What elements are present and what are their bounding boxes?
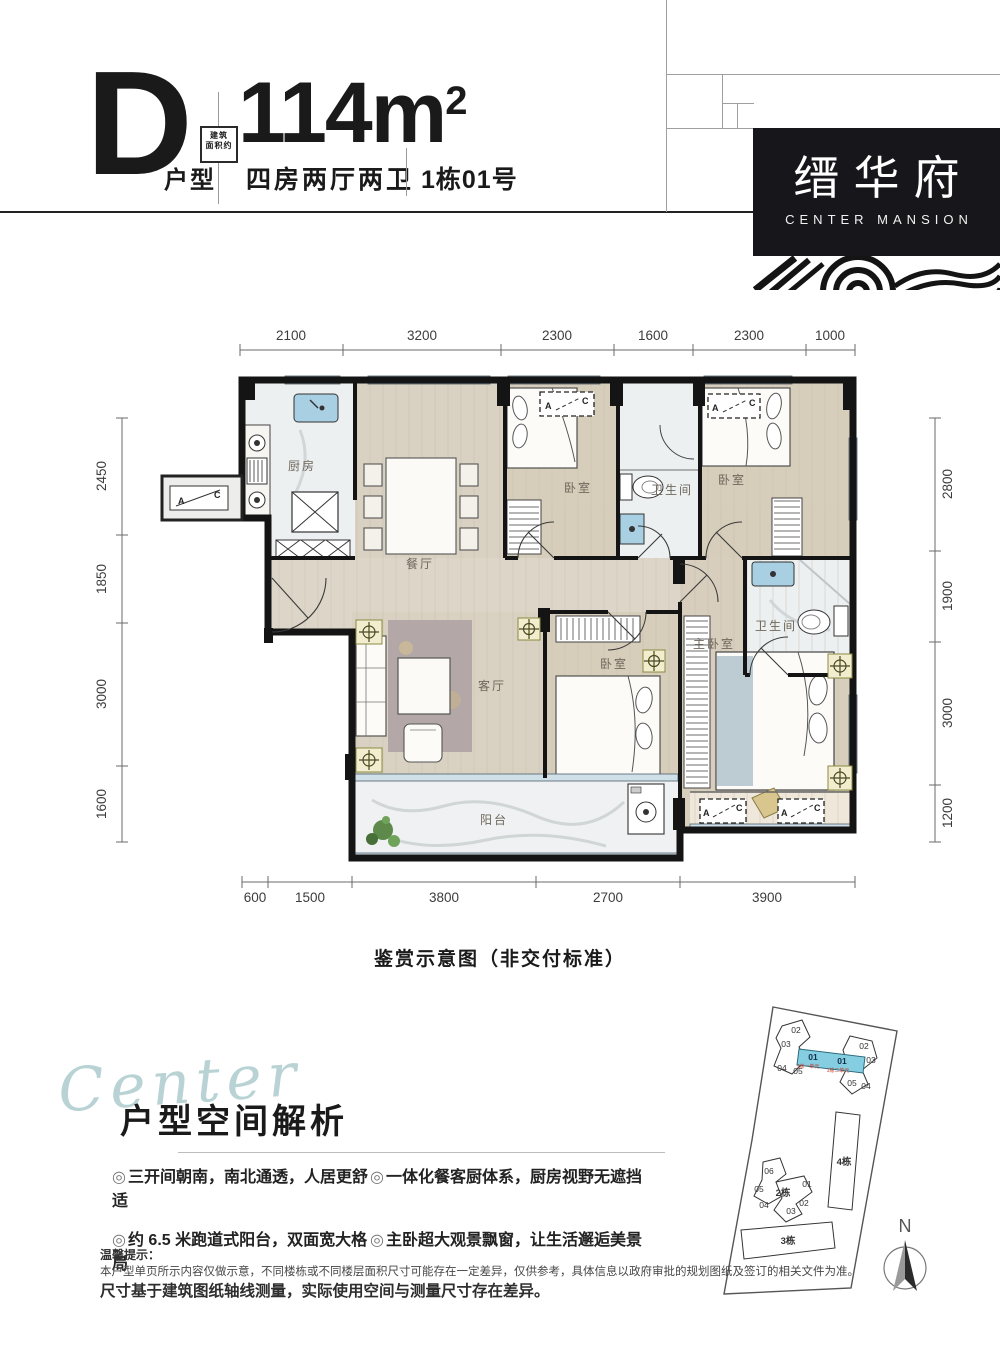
ac-letter-a: A — [712, 403, 719, 413]
disclaimer-line1: 本户型单页所示内容仅做示意，不同楼栋或不同楼层面积尺寸可能存在一定差异，仅供参考… — [100, 1263, 980, 1279]
bullet-marker: ◎ — [370, 1232, 384, 1249]
brand-name-en: CENTER MANSION — [753, 212, 1000, 227]
rooms-summary: 四房两厅两卫 — [246, 160, 414, 196]
dim-bottom: 1500 — [295, 890, 325, 905]
bullet-text: 主卧超大观景飘窗，让生活邂逅美景 — [386, 1232, 642, 1249]
ornament-line — [737, 103, 738, 129]
ac-letter-a: A — [703, 808, 710, 818]
bullet-text: 一体化餐客厨体系，厨房视野无遮挡 — [386, 1169, 642, 1186]
header-divider-2 — [406, 148, 407, 196]
analysis-bullets: ◎三开间朝南，南北通透，人居更舒适 ◎约 6.5 米跑道式阳台，双面宽大格局 ◎… — [112, 1163, 732, 1274]
ac-letter-c: C — [582, 396, 589, 406]
dim-bottom: 3900 — [752, 890, 782, 905]
disclaimer-title: 温馨提示： — [100, 1246, 160, 1263]
unit-label: 02 — [791, 1025, 801, 1035]
unit-red-label: 1栋一单元 — [797, 1063, 820, 1070]
floor-plan: A C A C A C A C — [85, 312, 975, 960]
flyer-page: D 户型 建筑 面积约 114m2 四房两厅两卫 1栋01号 缙华府 CENTE… — [0, 0, 1000, 1356]
dim-right: 2800 — [940, 469, 955, 499]
north-label: N — [899, 1216, 912, 1236]
bullet-marker: ◎ — [112, 1169, 126, 1186]
unit-label: 04 — [759, 1200, 769, 1210]
unit-red-label: 1栋二单元 — [827, 1067, 850, 1074]
dim-bottom: 600 — [244, 890, 267, 905]
label-balcony: 阳台 — [480, 812, 508, 827]
label-kitchen: 厨房 — [288, 458, 316, 473]
dim-left: 3000 — [94, 679, 109, 709]
area-tag-line2: 面积约 — [202, 141, 236, 151]
dim-right: 1900 — [940, 581, 955, 611]
dim-top: 2300 — [734, 328, 764, 343]
building3-label: 3栋 — [781, 1235, 796, 1247]
disclaimer-line2: 尺寸基于建筑图纸轴线测量，实际使用空间与测量尺寸存在差异。 — [100, 1279, 980, 1301]
ac-letter-c: C — [736, 803, 743, 813]
area-tag-line1: 建筑 — [202, 131, 236, 141]
ornament-line — [666, 74, 1000, 75]
bullet-text: 三开间朝南，南北通透，人居更舒适 — [112, 1169, 368, 1210]
label-living: 客厅 — [478, 678, 506, 693]
analysis-title: 户型空间解析 — [120, 1094, 348, 1143]
analysis-rule — [178, 1152, 665, 1153]
dim-top: 1000 — [815, 328, 845, 343]
ac-letter-c: C — [749, 398, 756, 408]
dim-right: 1200 — [940, 798, 955, 828]
dim-left: 1600 — [94, 789, 109, 819]
unit-label: 02 — [799, 1198, 809, 1208]
brand-name-cn: 缙华府 — [753, 142, 1000, 208]
ac-letter-c: C — [814, 803, 821, 813]
dim-left: 1850 — [94, 564, 109, 594]
unit-label: 04 — [861, 1081, 871, 1091]
brand-logo-box: 缙华府 CENTER MANSION — [753, 128, 1000, 256]
building2-label: 2栋 — [776, 1187, 791, 1199]
label-dining: 餐厅 — [406, 556, 434, 571]
area-sup: 2 — [445, 79, 467, 123]
ac-letter-a: A — [781, 808, 788, 818]
dim-top: 2300 — [542, 328, 572, 343]
header-rule — [0, 211, 753, 213]
zebra-pattern — [753, 256, 1000, 290]
label-bath: 卫生间 — [651, 483, 693, 497]
site-plan: 02 03 04 05 02 03 05 04 01 01 1栋一单元 1栋二单… — [715, 992, 1000, 1304]
dim-bottom: 2700 — [593, 890, 623, 905]
dim-left: 2450 — [94, 461, 109, 491]
ornament-line — [722, 103, 754, 104]
label-bedroom: 卧室 — [718, 472, 746, 487]
ac-letter-a: A — [178, 496, 185, 506]
area-value: 114m2 — [238, 70, 467, 156]
dim-right: 3000 — [940, 698, 955, 728]
unit-label: 02 — [859, 1041, 869, 1051]
unit-label: 06 — [764, 1166, 774, 1176]
dim-bottom: 3800 — [429, 890, 459, 905]
plan-caption: 鉴赏示意图（非交付标准） — [0, 944, 1000, 971]
highlight-unit-label: 01 — [808, 1052, 818, 1062]
label-bedroom: 卧室 — [564, 480, 592, 495]
bullet-item: ◎三开间朝南，南北通透，人居更舒适 — [112, 1163, 370, 1211]
dim-top: 3200 — [407, 328, 437, 343]
unit-label: 03 — [786, 1206, 796, 1216]
area-tag-box: 建筑 面积约 — [200, 126, 238, 163]
label-master: 主卧室 — [693, 636, 735, 651]
ornament-line — [666, 128, 754, 129]
label-bedroom: 卧室 — [600, 656, 628, 671]
area-number: 114m — [238, 65, 445, 161]
unit-label: 03 — [781, 1039, 791, 1049]
highlight-unit-label: 01 — [837, 1056, 847, 1066]
building-number: 1栋01号 — [421, 160, 518, 196]
unit-label: 05 — [847, 1078, 857, 1088]
label-bath: 卫生间 — [755, 619, 797, 633]
unit-label: 01 — [802, 1179, 812, 1189]
unit-label: 03 — [866, 1055, 876, 1065]
ornament-line — [666, 0, 667, 212]
dim-top: 2100 — [276, 328, 306, 343]
dim-top: 1600 — [638, 328, 668, 343]
dining-set — [364, 458, 478, 554]
ac-letter-c: C — [214, 490, 221, 500]
building4-label: 4栋 — [837, 1156, 852, 1168]
unit-label: 05 — [754, 1184, 764, 1194]
ac-letter-a: A — [545, 401, 552, 411]
unit-type-suffix: 户型 — [164, 160, 216, 195]
bullet-marker: ◎ — [370, 1169, 384, 1186]
ac-platform: A C — [162, 476, 242, 520]
unit-label: 04 — [777, 1063, 787, 1073]
ornament-line — [722, 74, 723, 129]
bullet-item: ◎一体化餐客厨体系，厨房视野无遮挡 — [370, 1163, 732, 1211]
